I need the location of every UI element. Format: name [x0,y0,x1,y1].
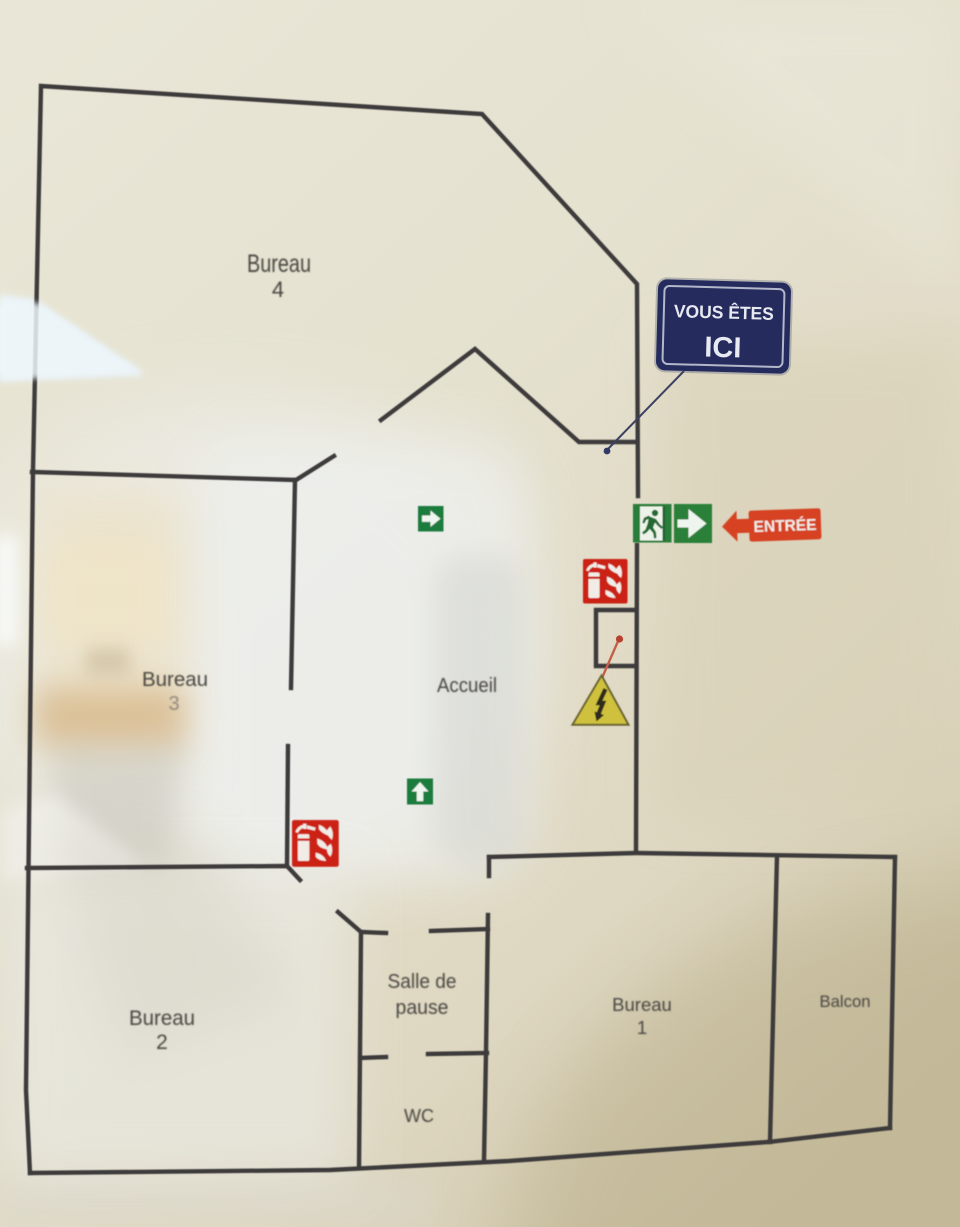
svg-text:1: 1 [637,1017,647,1038]
svg-text:Balcon: Balcon [820,993,871,1011]
svg-text:pause: pause [396,997,449,1019]
svg-text:Bureau: Bureau [129,1007,195,1030]
svg-text:2: 2 [156,1031,168,1054]
svg-text:Accueil: Accueil [437,675,497,697]
svg-text:4: 4 [272,277,284,302]
svg-text:WC: WC [404,1106,434,1126]
svg-text:VOUS ÊTES: VOUS ÊTES [674,300,775,324]
svg-text:Bureau: Bureau [612,994,672,1015]
svg-text:ICI: ICI [704,331,742,364]
svg-text:3: 3 [168,693,179,715]
svg-text:ENTRÉE: ENTRÉE [753,515,817,536]
svg-text:Bureau: Bureau [142,668,208,691]
svg-text:Salle de: Salle de [388,971,457,993]
svg-text:Bureau: Bureau [247,250,311,278]
